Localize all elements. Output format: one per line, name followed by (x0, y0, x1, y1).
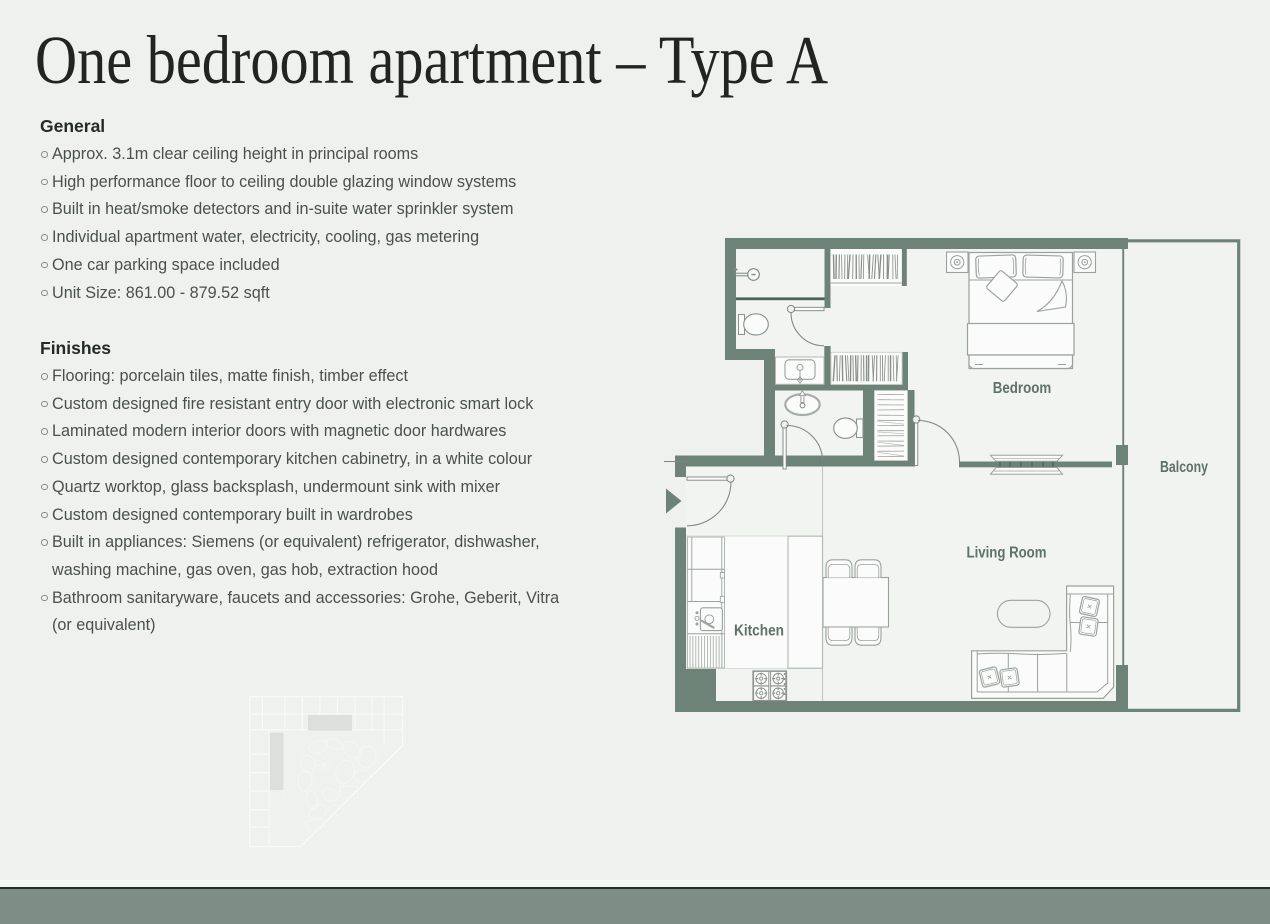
svg-text:Living Room: Living Room (967, 545, 1047, 562)
svg-text:Balcony: Balcony (1160, 459, 1208, 476)
svg-text:Bedroom: Bedroom (993, 380, 1052, 397)
svg-text:Kitchen: Kitchen (734, 623, 784, 640)
